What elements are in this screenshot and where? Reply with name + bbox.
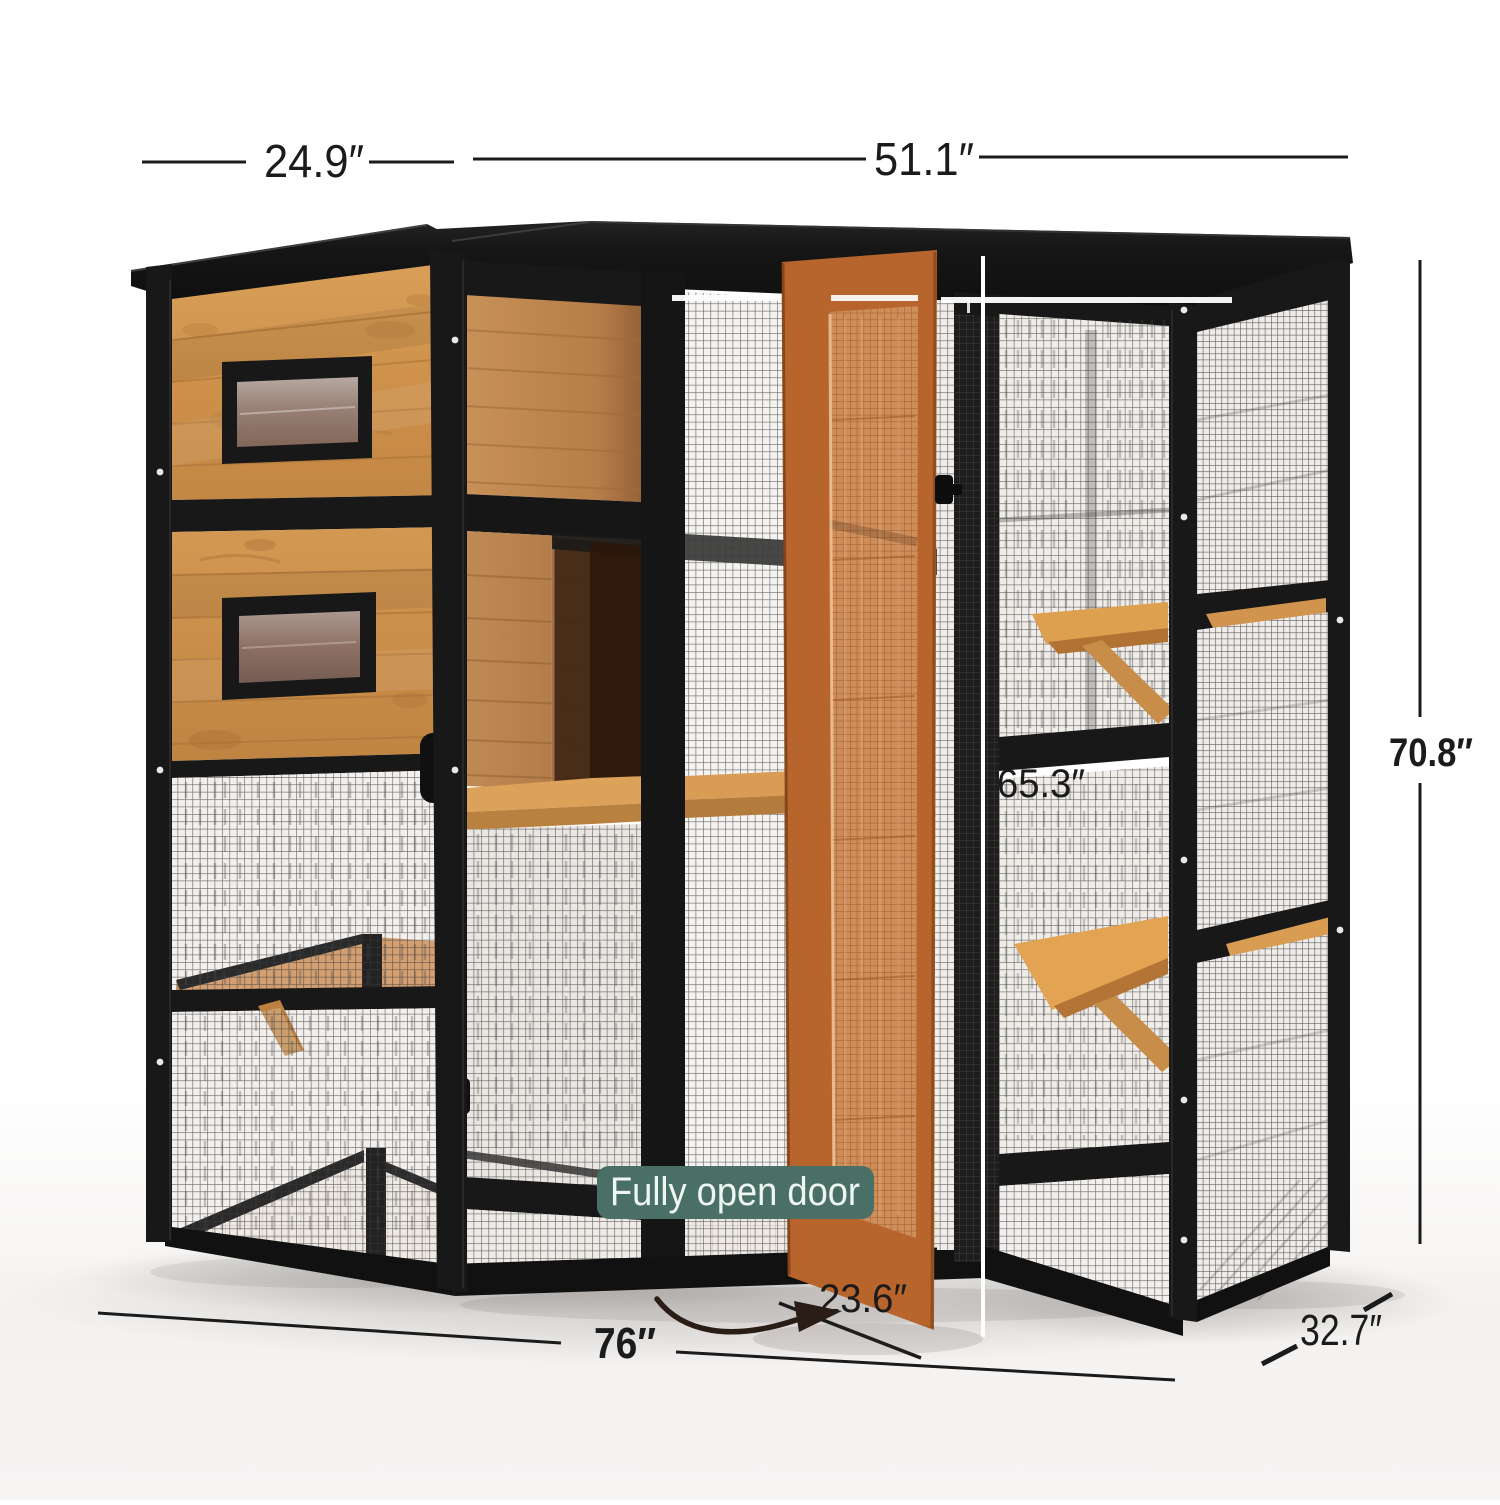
svg-text:51.1″: 51.1″: [874, 133, 974, 185]
svg-text:24.9″: 24.9″: [264, 135, 364, 187]
svg-text:Fully open door: Fully open door: [610, 1170, 860, 1214]
svg-text:65.3″: 65.3″: [997, 762, 1085, 806]
svg-text:32.7″: 32.7″: [1300, 1306, 1382, 1355]
svg-text:76″: 76″: [594, 1319, 656, 1368]
svg-text:70.8″: 70.8″: [1389, 731, 1473, 775]
